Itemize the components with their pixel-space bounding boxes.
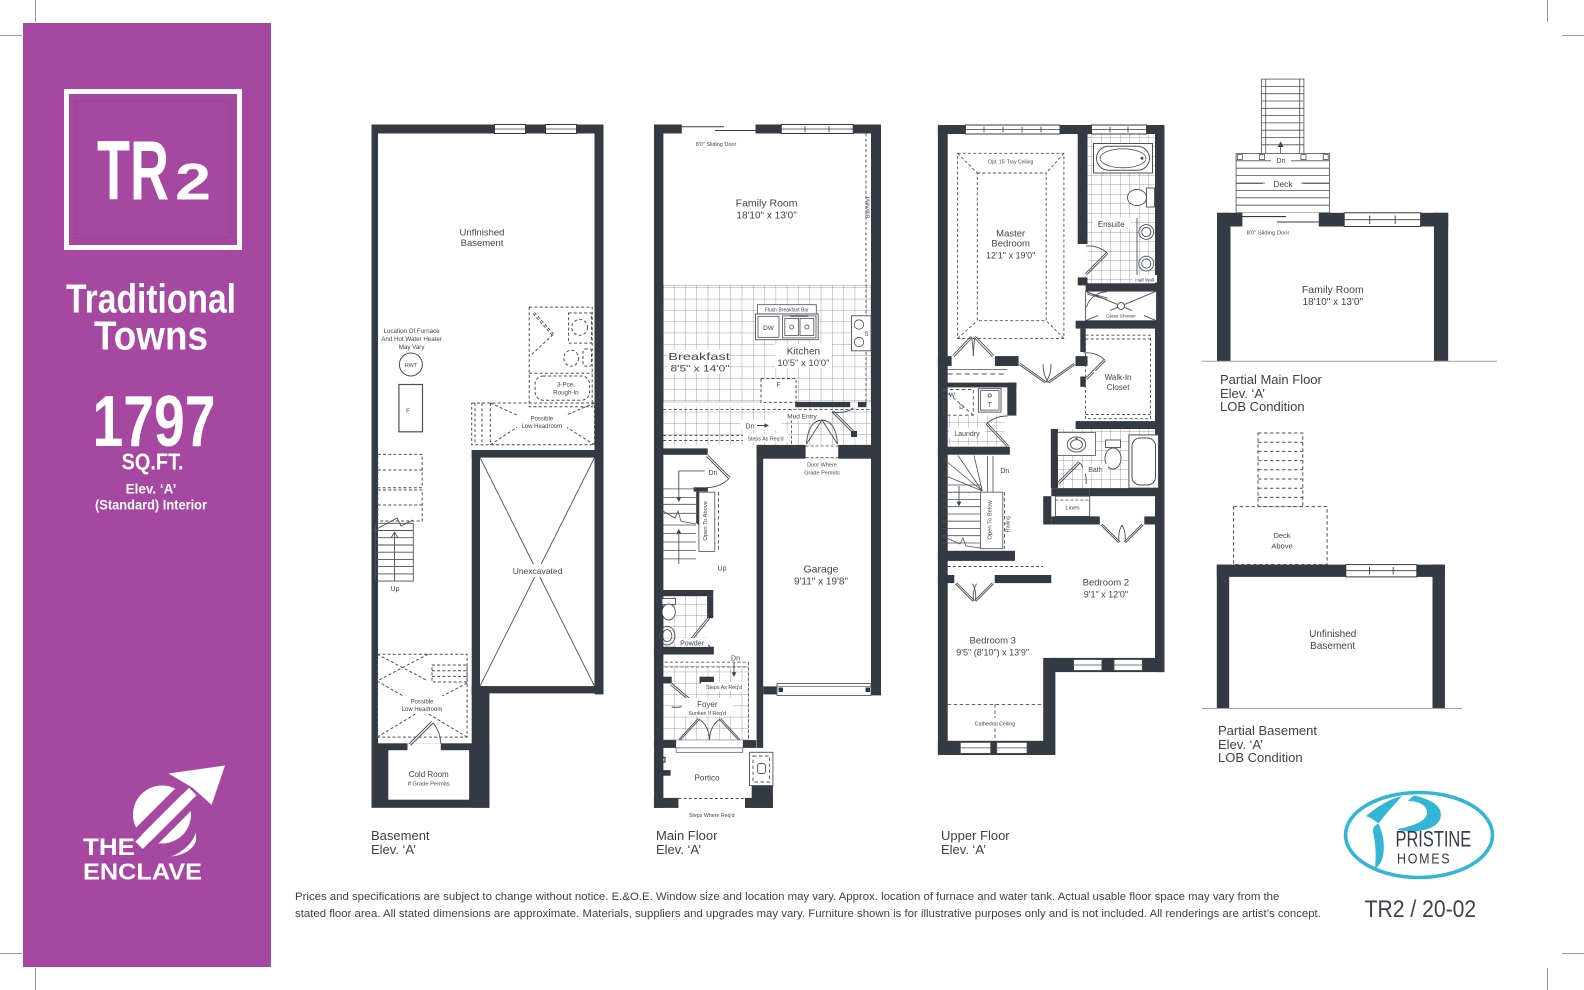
svg-text:Cold Room: Cold Room [409, 770, 449, 779]
svg-text:Rough-In: Rough-In [553, 390, 579, 397]
svg-text:Kitchen: Kitchen [787, 347, 820, 358]
svg-text:Grade Permits: Grade Permits [804, 471, 840, 477]
svg-text:Dn: Dn [731, 656, 740, 663]
svg-text:Sunken If Req'd: Sunken If Req'd [689, 711, 727, 717]
svg-text:W: W [949, 392, 956, 399]
svg-text:Unfinished: Unfinished [460, 228, 505, 239]
svg-text:THE: THE [83, 834, 135, 861]
svg-text:Breakfast: Breakfast [668, 351, 730, 363]
svg-text:Laundry: Laundry [954, 431, 980, 438]
svg-text:Possible: Possible [530, 417, 553, 423]
svg-text:TR: TR [97, 124, 169, 218]
svg-text:3-Pce.: 3-Pce. [557, 381, 575, 388]
svg-text:ENCLAVE: ENCLAVE [83, 859, 202, 885]
svg-text:SQ.FT.: SQ.FT. [122, 449, 184, 475]
svg-text:HWT: HWT [405, 363, 418, 369]
svg-text:Railing: Railing [1006, 516, 1012, 532]
svg-text:Unfinished: Unfinished [1309, 629, 1356, 640]
svg-text:Dn: Dn [746, 424, 755, 431]
svg-text:Unexcavated: Unexcavated [513, 566, 563, 576]
svg-text:D: D [959, 404, 964, 411]
svg-text:Basement: Basement [461, 238, 504, 249]
svg-text:Dn: Dn [709, 470, 718, 477]
svg-text:Open To Above: Open To Above [703, 501, 709, 541]
svg-text:If Grade Permits: If Grade Permits [408, 782, 450, 788]
svg-text:Up: Up [718, 566, 727, 573]
svg-text:F: F [406, 409, 410, 415]
svg-text:Mud Entry: Mud Entry [787, 414, 817, 421]
svg-text:9'11" x 19'8": 9'11" x 19'8" [794, 577, 849, 588]
svg-text:12'1" x 19'0": 12'1" x 19'0" [986, 251, 1035, 261]
svg-text:Glass Shower: Glass Shower [1106, 313, 1136, 319]
svg-text:9'5" (8'10") x 13'9": 9'5" (8'10") x 13'9" [956, 648, 1029, 658]
svg-text:May Vary: May Vary [399, 344, 426, 351]
svg-text:18'10" x 13'0": 18'10" x 13'0" [1303, 297, 1364, 308]
svg-text:Closet: Closet [1107, 383, 1130, 392]
svg-text:9'1" x 12'0": 9'1" x 12'0" [1084, 590, 1128, 600]
svg-text:8'0" Sliding Door: 8'0" Sliding Door [1247, 231, 1290, 237]
svg-text:Dn: Dn [1000, 468, 1009, 475]
svg-text:Cathedral Ceiling: Cathedral Ceiling [975, 722, 1016, 728]
svg-text:Powder: Powder [680, 641, 704, 648]
svg-text:Deck: Deck [1273, 531, 1290, 540]
svg-text:Ensuite: Ensuite [1098, 220, 1125, 229]
svg-text:Opt. 15' Tray Ceiling: Opt. 15' Tray Ceiling [988, 160, 1033, 166]
svg-text:18'10" x 13'0": 18'10" x 13'0" [736, 211, 797, 222]
svg-text:Elev. ‘A’: Elev. ‘A’ [126, 481, 177, 496]
svg-text:Location Of Furnace: Location Of Furnace [384, 328, 441, 335]
svg-text:PRISTINE: PRISTINE [1396, 827, 1472, 852]
svg-text:T: T [988, 402, 993, 409]
svg-text:8'5" x 14'0": 8'5" x 14'0" [671, 364, 730, 375]
svg-text:HOMES: HOMES [1397, 851, 1451, 867]
svg-text:Dn: Dn [1277, 158, 1286, 165]
svg-text:Possible: Possible [411, 700, 434, 706]
svg-text:Bedroom 2: Bedroom 2 [1083, 578, 1129, 589]
svg-text:S: S [864, 332, 868, 338]
svg-text:Low Headroom: Low Headroom [402, 707, 443, 713]
svg-text:Door Where: Door Where [807, 463, 837, 469]
svg-text:Basement: Basement [1310, 641, 1355, 652]
svg-text:Flush Breakfast Bar: Flush Breakfast Bar [765, 307, 809, 313]
svg-text:Open To Below: Open To Below [988, 500, 994, 540]
svg-text:Family Room: Family Room [1302, 284, 1364, 296]
svg-text:Bulkhead: Bulkhead [866, 197, 872, 218]
svg-text:Low Headroom: Low Headroom [521, 424, 562, 430]
svg-text:Garage: Garage [803, 564, 838, 576]
svg-text:Steps As Req'd: Steps As Req'd [706, 685, 742, 691]
svg-text:2: 2 [175, 154, 211, 212]
svg-text:Deck: Deck [1273, 179, 1293, 189]
svg-text:Portico: Portico [695, 774, 720, 783]
svg-text:Half Wall: Half Wall [1135, 277, 1154, 283]
svg-text:F: F [777, 382, 781, 389]
svg-text:(Standard) Interior: (Standard) Interior [95, 498, 208, 513]
svg-text:Foyer: Foyer [697, 700, 718, 709]
svg-text:Linen: Linen [1065, 506, 1079, 512]
svg-text:Bedroom: Bedroom [991, 239, 1030, 250]
svg-text:Family Room: Family Room [736, 198, 798, 210]
svg-text:Above: Above [1271, 542, 1292, 551]
svg-text:8'0" Sliding Door: 8'0" Sliding Door [696, 142, 737, 148]
svg-text:Walk-In: Walk-In [1105, 373, 1132, 382]
svg-text:Bedroom 3: Bedroom 3 [969, 636, 1015, 647]
svg-text:Towns: Towns [94, 313, 208, 359]
svg-text:Steps Where Req'd: Steps Where Req'd [689, 813, 735, 819]
svg-text:Up: Up [391, 586, 400, 593]
svg-text:10'5" x 10'0": 10'5" x 10'0" [777, 358, 829, 369]
svg-text:Steps As Req'd: Steps As Req'd [747, 436, 783, 442]
svg-text:DW: DW [763, 325, 775, 332]
svg-text:Bath: Bath [1088, 467, 1103, 474]
svg-text:And Hot Water Heater: And Hot Water Heater [381, 336, 442, 343]
